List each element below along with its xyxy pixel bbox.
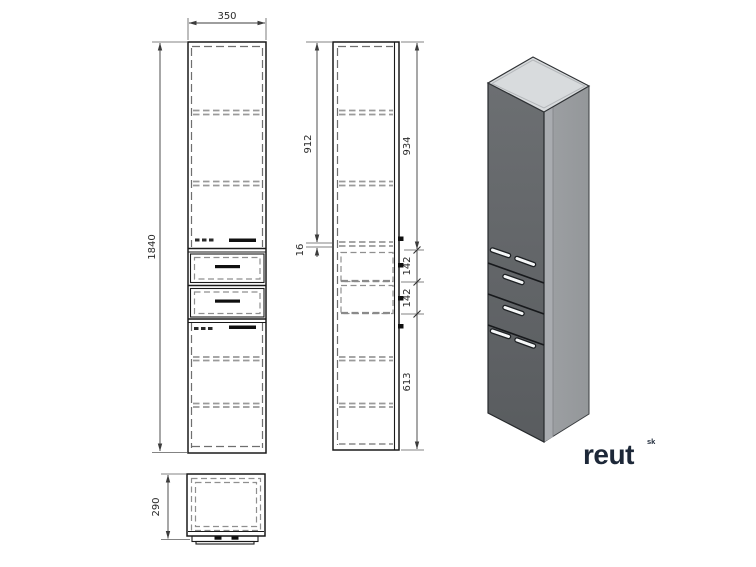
lower-door-handle-right <box>229 326 256 330</box>
dim-front-width-label: 350 <box>217 11 236 22</box>
render-door-edge-strip <box>544 107 553 442</box>
front-carcass-outline <box>188 42 266 453</box>
cabinet-drawing: 350 1840 <box>0 0 756 567</box>
dim-side-912-label: 912 <box>303 134 314 153</box>
upper-door-handle-right <box>229 239 256 243</box>
dim-side-613-label: 613 <box>402 372 413 391</box>
dim-top-290-label: 290 <box>151 497 162 516</box>
drawer-2-handle <box>215 300 240 303</box>
render-front-face <box>488 83 544 442</box>
dim-front-height-label: 1840 <box>147 234 158 259</box>
dim-side-142a-label: 142 <box>402 256 413 275</box>
dim-side-142b-label: 142 <box>402 288 413 307</box>
dim-side-934-label: 934 <box>402 136 413 155</box>
cabinet-3d-render <box>488 57 589 442</box>
drawing-sheet: 350 1840 <box>0 0 756 567</box>
brand-logo-text: reut <box>583 439 634 470</box>
top-view: 290 <box>151 474 265 544</box>
dim-side-16-label: 16 <box>295 244 306 257</box>
drawer-1-handle <box>215 265 240 268</box>
brand-logo-superscript: sk <box>647 437 656 446</box>
